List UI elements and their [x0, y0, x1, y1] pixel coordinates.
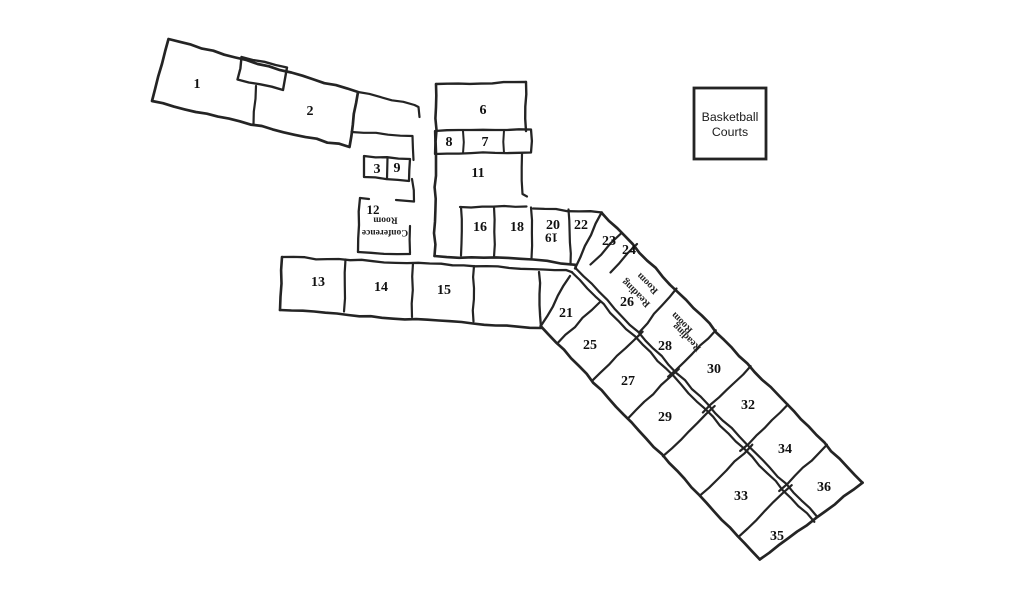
svg-text:6: 6 — [480, 103, 487, 118]
svg-text:Basketball: Basketball — [702, 110, 759, 124]
svg-text:27: 27 — [621, 374, 635, 389]
svg-text:33: 33 — [734, 489, 748, 504]
svg-text:8: 8 — [446, 135, 453, 150]
svg-text:36: 36 — [817, 480, 831, 495]
svg-text:7: 7 — [482, 135, 489, 150]
svg-text:11: 11 — [471, 166, 484, 181]
svg-text:32: 32 — [741, 398, 755, 413]
svg-text:9: 9 — [394, 161, 401, 176]
svg-text:Courts: Courts — [712, 125, 748, 139]
svg-text:3: 3 — [374, 162, 381, 177]
svg-text:22: 22 — [574, 218, 588, 233]
svg-text:13: 13 — [311, 275, 325, 290]
svg-text:29: 29 — [658, 410, 672, 425]
svg-text:1: 1 — [194, 77, 201, 92]
svg-text:18: 18 — [510, 220, 524, 235]
svg-text:30: 30 — [707, 362, 721, 377]
svg-text:2: 2 — [307, 104, 314, 119]
svg-text:25: 25 — [583, 338, 597, 353]
svg-text:28: 28 — [658, 339, 672, 354]
svg-text:24: 24 — [622, 243, 636, 258]
svg-text:35: 35 — [770, 529, 784, 544]
svg-text:21: 21 — [559, 306, 573, 321]
svg-text:34: 34 — [778, 442, 792, 457]
svg-text:19: 19 — [545, 231, 559, 246]
svg-text:16: 16 — [473, 220, 487, 235]
svg-text:15: 15 — [437, 283, 451, 298]
svg-text:23: 23 — [602, 234, 616, 249]
svg-text:Room: Room — [373, 215, 397, 225]
svg-text:Conference: Conference — [362, 227, 408, 237]
svg-text:14: 14 — [374, 280, 388, 295]
